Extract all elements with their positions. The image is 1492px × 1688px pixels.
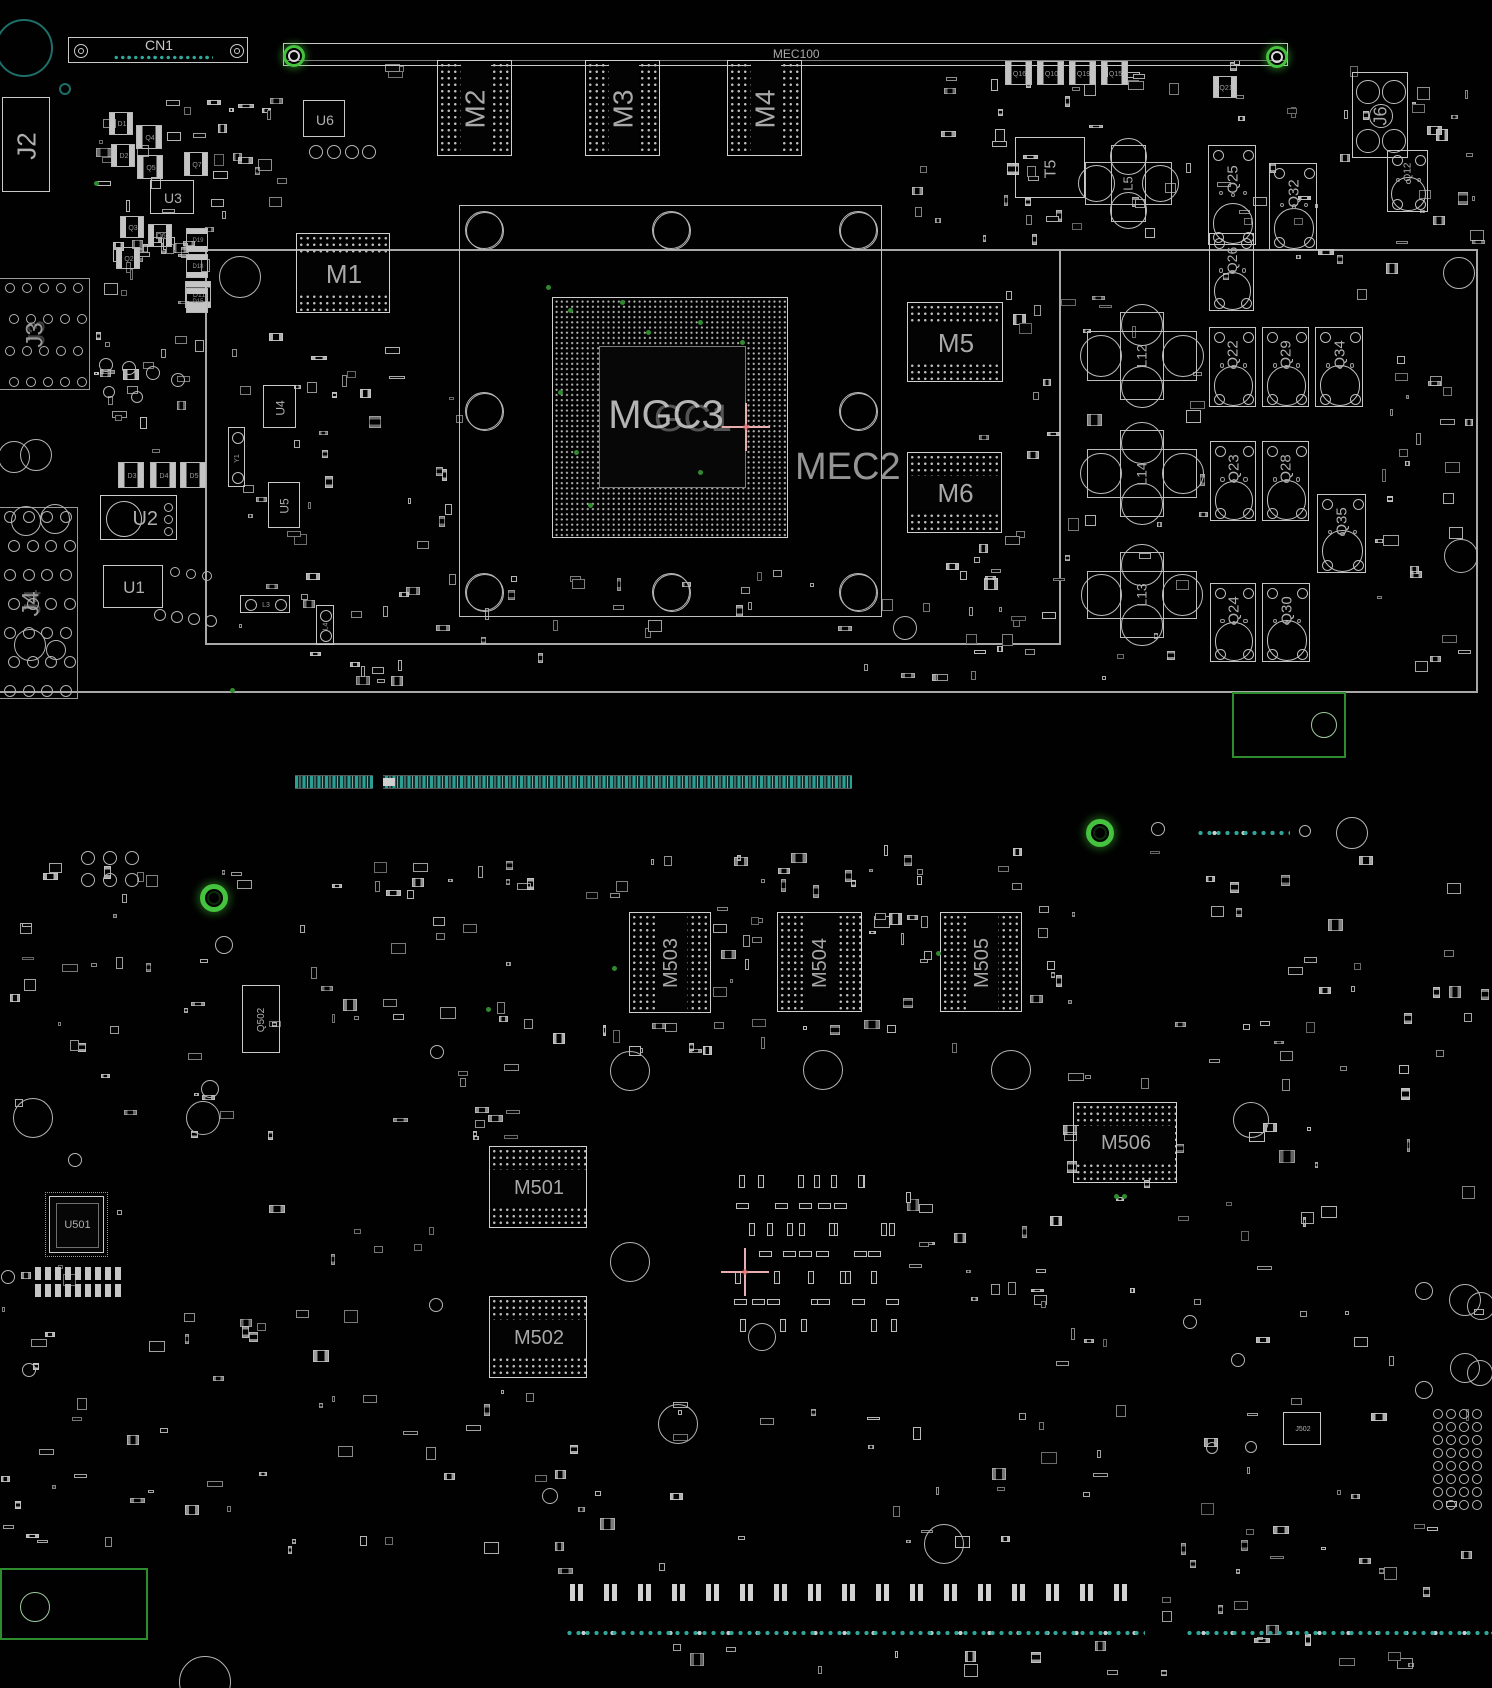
smd-pad (72, 1417, 82, 1421)
smd-pad (1340, 1066, 1346, 1070)
via (1459, 1474, 1469, 1484)
smd-pad (1306, 1022, 1315, 1032)
smd-pad (21, 1272, 31, 1278)
pad-circle (610, 1242, 650, 1282)
smd-pad (774, 1271, 780, 1284)
smd-pad (1030, 995, 1042, 1004)
via (1459, 1461, 1469, 1471)
pad (95, 1267, 101, 1280)
smd-pad (43, 873, 58, 880)
smd-pad (818, 1666, 822, 1674)
smd-pad (670, 1493, 683, 1500)
smd-pad (110, 1026, 119, 1034)
smd-pad (403, 1431, 418, 1434)
smd-pad (504, 1064, 519, 1071)
pad (55, 1267, 61, 1280)
smd-pad (1041, 1452, 1057, 1464)
smd-pad (31, 1339, 46, 1347)
smd-pad (344, 1310, 357, 1323)
pad-circle (103, 873, 117, 887)
smd-pad (478, 866, 483, 877)
component-m501[interactable]: M501 (489, 1146, 587, 1228)
smd-pad (734, 857, 748, 866)
smd-pad (37, 1540, 48, 1543)
smd-pad (185, 1334, 189, 1344)
pad (115, 1267, 121, 1280)
component-label: M505 (966, 916, 999, 1011)
smd-pad (1161, 1670, 1167, 1677)
smd-pad (1041, 1301, 1046, 1308)
pad (45, 1284, 51, 1297)
smd-pad (651, 859, 655, 866)
smd-pad (808, 1271, 814, 1284)
silkscreen-green-box (0, 1568, 148, 1640)
pad-circle (1233, 1102, 1269, 1138)
component-label: J502 (1284, 1413, 1322, 1446)
smd-pad (240, 1319, 252, 1328)
component-label: M502 (492, 1320, 585, 1356)
smd-pad (1162, 1611, 1172, 1621)
smd-pad (1404, 1013, 1412, 1023)
smd-pad (1056, 1361, 1069, 1366)
via (1433, 1448, 1443, 1458)
smd-pad (127, 1435, 139, 1444)
smd-pad (799, 1251, 812, 1257)
smd-pad (730, 979, 733, 983)
smd-pad (146, 875, 157, 887)
smd-pad (1315, 1162, 1319, 1168)
smd-pad (1241, 1540, 1248, 1552)
pad-row (35, 1267, 125, 1301)
component-m504[interactable]: M504 (777, 912, 862, 1012)
smd-pad (2, 1307, 5, 1313)
smd-pad (895, 1651, 898, 1658)
smd-pad (1107, 1670, 1118, 1674)
smd-pad (652, 1023, 666, 1029)
smd-pad (760, 1418, 774, 1426)
smd-pad (904, 855, 912, 866)
smd-pad (194, 1093, 199, 1096)
component-m502[interactable]: M502 (489, 1296, 587, 1378)
component-m503[interactable]: M503 (629, 912, 711, 1013)
smd-pad (475, 1107, 489, 1112)
pad (115, 1284, 121, 1297)
smd-pad (10, 994, 20, 1002)
pad-circle (125, 851, 139, 865)
smd-pad (868, 1445, 874, 1449)
smd-pad (242, 1326, 248, 1338)
smd-pad (363, 1395, 378, 1403)
component-m506[interactable]: M506 (1073, 1102, 1177, 1183)
smd-pad (936, 1487, 939, 1496)
smd-pad (62, 964, 78, 972)
smd-pad (484, 1404, 490, 1416)
smd-pad (184, 1313, 195, 1322)
smd-pad (1130, 1288, 1135, 1293)
selection-crosshair (742, 1269, 748, 1275)
smd-pad (917, 876, 921, 885)
smd-pad (113, 914, 117, 918)
smd-pad (22, 957, 34, 960)
smd-pad (1407, 1139, 1410, 1151)
smd-pad (913, 1427, 921, 1440)
pad-circle (542, 1488, 558, 1504)
smd-pad (971, 1297, 978, 1301)
smd-pad (383, 999, 397, 1007)
smd-pad (374, 862, 387, 873)
pad-circle (1467, 1292, 1492, 1320)
smd-pad (1050, 1216, 1062, 1226)
label-band: M506 (1077, 1126, 1176, 1162)
smd-pad (332, 884, 342, 887)
via (1433, 1409, 1443, 1419)
smd-pad (1103, 1339, 1107, 1348)
smd-pad (231, 872, 242, 876)
smd-pad (689, 1043, 694, 1051)
smd-pad (1462, 1186, 1475, 1199)
smd-pad (570, 1445, 577, 1454)
smd-pad (1068, 1073, 1084, 1082)
pad-circle (1415, 1381, 1433, 1399)
smd-pad (444, 1473, 455, 1481)
qfp-die (56, 1203, 99, 1248)
smd-pad (1359, 1558, 1370, 1564)
smd-pad (893, 1506, 900, 1517)
smd-pad (553, 1033, 566, 1044)
smd-pad (1246, 1529, 1254, 1535)
smd-pad (1260, 1021, 1270, 1026)
smd-pad (664, 856, 671, 867)
smd-pad (595, 1491, 601, 1496)
smd-pad (506, 1110, 521, 1114)
smd-pad (713, 924, 728, 933)
smd-pad (413, 863, 428, 872)
smd-pad (1319, 987, 1332, 993)
smd-pad (845, 870, 852, 882)
smd-pad (1461, 1551, 1473, 1559)
smd-pad (296, 1310, 309, 1318)
smd-pad (791, 853, 807, 862)
smd-pad (440, 1007, 456, 1019)
smd-pad (783, 1251, 796, 1257)
smd-pad (24, 979, 36, 991)
smd-pad (745, 959, 749, 969)
smd-pad (1359, 856, 1373, 865)
smd-pad (412, 878, 424, 888)
smd-pad (473, 1131, 476, 1137)
smd-pad (122, 894, 127, 904)
smd-pad (600, 1518, 615, 1530)
smd-pad (354, 1229, 361, 1234)
via (1446, 1435, 1456, 1445)
smd-pad (332, 1014, 335, 1023)
smd-pad (1095, 1641, 1107, 1651)
smd-pad (875, 913, 886, 919)
smd-pad (146, 963, 152, 972)
smd-pad (22, 923, 32, 927)
label-band: M503 (655, 916, 688, 1012)
smd-pad (767, 1299, 780, 1305)
smd-pad (101, 1074, 110, 1078)
component-label: M504 (804, 916, 838, 1011)
pad (95, 1284, 101, 1297)
pad-circle (1206, 1442, 1218, 1454)
smd-pad (864, 1020, 880, 1029)
smd-pad (77, 1398, 87, 1410)
smd-pad (458, 1071, 468, 1076)
smd-pad (39, 1449, 54, 1456)
pad (75, 1284, 81, 1297)
via (1459, 1448, 1469, 1458)
pad-circle (1336, 817, 1368, 849)
smd-pad (497, 1002, 505, 1014)
smd-pad (1047, 961, 1054, 970)
smd-pad (919, 1242, 929, 1247)
smd-pad (673, 1644, 681, 1651)
smd-pad (499, 1016, 508, 1023)
smd-pad (1257, 1266, 1272, 1270)
smd-pad (1071, 1328, 1075, 1340)
smd-pad (466, 1425, 481, 1430)
smd-pad (257, 1323, 266, 1331)
smd-pad (360, 1536, 367, 1547)
smd-pad (752, 1019, 766, 1027)
smd-pad (292, 1539, 296, 1544)
smd-pad (1039, 1422, 1044, 1431)
smd-pad (801, 1319, 807, 1332)
pad-circle (429, 1298, 443, 1312)
mount-pad (20, 1592, 50, 1622)
smd-pad (526, 1393, 534, 1403)
via (1472, 1487, 1482, 1497)
smd-pad (504, 1135, 517, 1139)
bottom-side: M503M504M505M501M502M506U501Q502J502 (0, 0, 1492, 1688)
pad-circle (748, 1323, 776, 1351)
smd-pad (1085, 1075, 1091, 1080)
smd-pad (3, 1525, 14, 1529)
smd-pad (1300, 1311, 1307, 1317)
smd-pad (213, 1376, 224, 1381)
smd-pad (220, 1111, 234, 1120)
smd-pad (1433, 987, 1440, 998)
smd-pad (269, 1205, 284, 1213)
smd-pad (385, 1537, 393, 1545)
component-u501[interactable]: U501 (49, 1196, 104, 1253)
pad (105, 1267, 111, 1280)
smd-pad (1013, 848, 1022, 857)
smd-pad (1201, 1503, 1214, 1515)
mounting-hole (1093, 826, 1107, 840)
smd-pad (555, 1542, 564, 1551)
smd-pad (616, 881, 627, 892)
via (1459, 1500, 1469, 1510)
smd-pad (703, 1046, 712, 1054)
smd-pad (1279, 1150, 1295, 1163)
via (1472, 1448, 1482, 1458)
smd-pad (965, 1651, 976, 1661)
smd-pad (1031, 1289, 1044, 1292)
smd-pad (117, 1210, 123, 1216)
smd-pad (488, 1115, 503, 1122)
smd-pad (1270, 1556, 1284, 1560)
pad (65, 1284, 71, 1297)
smd-pad (185, 1505, 199, 1514)
smd-pad (1351, 1494, 1361, 1499)
pad (35, 1267, 41, 1280)
smd-pad (1339, 1658, 1355, 1666)
smd-pad (15, 1501, 22, 1508)
smd-pad (659, 1563, 665, 1571)
pad-circle (991, 1050, 1031, 1090)
smd-pad (105, 1537, 112, 1546)
smd-pad (1354, 963, 1361, 970)
smd-pad (1230, 882, 1239, 893)
smd-pad (1162, 1597, 1171, 1604)
smd-pad (752, 937, 762, 943)
smd-pad (313, 1350, 329, 1362)
smd-pad (799, 1223, 805, 1236)
component-j502[interactable]: J502 (1283, 1412, 1321, 1445)
smd-pad (501, 1390, 504, 1394)
pad (35, 1284, 41, 1297)
smd-pad (288, 1546, 292, 1554)
smd-pad (249, 1332, 258, 1342)
boardview-canvas: CN1MEC100J2U6U3M2M3M4M1GC1MGC3M5M6T5Q25Q… (0, 0, 1492, 1688)
smd-pad (1247, 1467, 1250, 1474)
smd-pad (759, 1251, 772, 1257)
smd-pad (555, 1470, 566, 1479)
pad-circle (13, 1098, 53, 1138)
smd-pad (259, 1472, 267, 1476)
smd-pad (1211, 906, 1224, 917)
smd-pad (1001, 1536, 1010, 1542)
via (1433, 1487, 1443, 1497)
smd-pad (354, 1016, 360, 1020)
smd-pad (149, 1341, 165, 1352)
pad-circle (1, 1270, 15, 1284)
smd-pad (761, 1037, 765, 1049)
smd-pad (429, 1227, 434, 1236)
component-m505[interactable]: M505 (940, 912, 1022, 1012)
smd-pad (665, 1023, 677, 1032)
pad-circle (103, 851, 117, 865)
smd-pad (966, 1270, 971, 1274)
via (1446, 1500, 1456, 1510)
smd-pad (52, 1485, 56, 1489)
pad (75, 1267, 81, 1280)
via (1446, 1487, 1456, 1497)
smd-pad (45, 1332, 55, 1338)
smd-pad (578, 1507, 585, 1512)
smd-pad (1282, 1079, 1290, 1090)
via (1472, 1422, 1482, 1432)
via-grid (1432, 1408, 1484, 1512)
smd-pad (374, 1246, 384, 1253)
pad (105, 1284, 111, 1297)
smd-pad (343, 999, 357, 1011)
pad-circle (610, 1051, 650, 1091)
component-q502[interactable]: Q502 (242, 985, 280, 1053)
fiducial-dot (936, 951, 941, 956)
via (1433, 1435, 1443, 1445)
smd-pad (148, 1490, 153, 1493)
smd-pad (1038, 928, 1048, 937)
smd-pad (1354, 1337, 1368, 1347)
smd-pad (460, 1078, 466, 1086)
smd-pad (881, 1223, 887, 1236)
pad-circle (1183, 1315, 1197, 1329)
smd-pad (1351, 986, 1355, 992)
smd-pad (58, 1022, 61, 1026)
smd-pad (726, 1647, 735, 1653)
smd-pad (751, 917, 759, 925)
smd-pad (1072, 912, 1076, 917)
via (1472, 1435, 1482, 1445)
smd-pad (889, 913, 902, 925)
smd-pad (1321, 1547, 1327, 1550)
pad-circle (1231, 1353, 1245, 1367)
via (1472, 1474, 1482, 1484)
smd-pad (414, 1244, 422, 1251)
smd-pad (26, 1534, 38, 1538)
smd-pad (869, 931, 876, 935)
smd-pad (188, 1053, 201, 1060)
smd-pad (124, 1110, 138, 1115)
smd-pad (1273, 1526, 1289, 1534)
smd-pad (222, 870, 225, 874)
smd-pad (1288, 967, 1303, 975)
pad (55, 1284, 61, 1297)
smd-pad (906, 1540, 911, 1543)
smd-pad (917, 869, 923, 875)
smd-pad (752, 1299, 765, 1305)
smd-pad (1423, 1587, 1430, 1597)
component-label: M503 (655, 916, 688, 1012)
smd-pad (1236, 1569, 1240, 1574)
smd-pad (921, 916, 929, 928)
smd-pad (74, 1474, 87, 1478)
smd-pad (1097, 1450, 1102, 1458)
smd-pad (1399, 1065, 1409, 1073)
smd-pad (767, 1223, 773, 1236)
smd-pad (952, 1043, 957, 1053)
smd-pad (1481, 989, 1488, 1001)
smd-pad (1051, 972, 1055, 978)
pad-circle (179, 1656, 231, 1688)
pad-strip (570, 1584, 1130, 1601)
smd-pad (586, 892, 598, 899)
pad-circle (658, 1404, 698, 1444)
smd-pad (713, 987, 727, 997)
smd-pad (690, 1653, 704, 1666)
smd-pad (780, 1319, 786, 1332)
smd-pad (1427, 1527, 1438, 1531)
smd-pad (1218, 1605, 1223, 1614)
fiducial-dot (1122, 1194, 1127, 1199)
label-band: M501 (492, 1170, 585, 1206)
smd-pad (738, 1536, 745, 1540)
smd-pad (1206, 876, 1215, 882)
smd-pad (924, 951, 933, 960)
smd-pad (184, 1008, 188, 1014)
smd-pad (1449, 986, 1462, 997)
smd-pad (743, 935, 750, 947)
smd-pad (610, 893, 619, 898)
smd-pad (393, 1118, 407, 1122)
smd-pad (871, 1271, 877, 1284)
smd-pad (506, 962, 511, 966)
smd-pad (1444, 950, 1454, 957)
